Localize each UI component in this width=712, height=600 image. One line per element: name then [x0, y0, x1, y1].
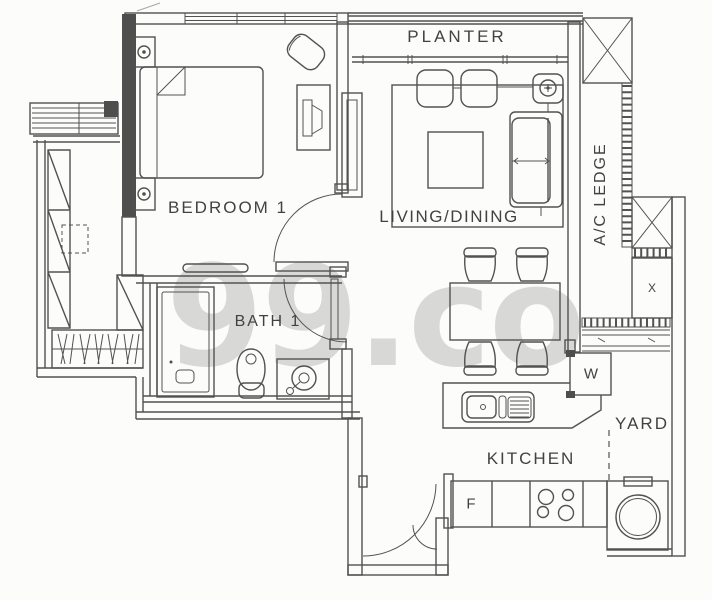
desk: [297, 85, 330, 150]
basin-drain: [299, 373, 309, 383]
bath-left-wall: [150, 283, 157, 396]
closet-dashed-unit: [62, 225, 88, 253]
planter-label: PLANTER: [407, 27, 506, 47]
washer-label: W: [584, 366, 598, 383]
floor-plan-drawing: [0, 0, 712, 600]
desk-chair-seat: [284, 31, 328, 74]
planter-track: [352, 57, 568, 62]
entrance-door-jamb: [359, 476, 367, 487]
bath-shelf: [183, 264, 248, 272]
bedroom-furniture: [133, 31, 330, 210]
entrance-right-wall: [436, 518, 448, 575]
bed-fold-diagonal: [157, 67, 185, 95]
laundry-sink: [616, 495, 660, 539]
lamp-bottom-dot: [142, 192, 146, 196]
hatch-strip-low: [582, 318, 670, 327]
living-furniture: [342, 70, 563, 227]
bath-right-wall: [342, 349, 352, 418]
ac-unit-box-mid-cross: [632, 197, 672, 248]
bath-door-leaf: [331, 279, 338, 339]
closet-left-wall: [37, 140, 45, 377]
floor-lamp-dot: [546, 86, 549, 89]
living-dining-label: LIVING/DINING: [379, 207, 518, 227]
bedroom1-label: BEDROOM 1: [168, 198, 288, 218]
yard-label: YARD: [615, 414, 669, 434]
dining-chair: [516, 248, 548, 281]
entrance-door-arc-small: [413, 525, 437, 549]
shower-drain-dot: [170, 361, 173, 364]
bedroom-left-wall: [122, 14, 136, 217]
floor-plan: 99.co: [0, 0, 712, 600]
dining-set: [450, 248, 560, 375]
ac-unit-label: X: [648, 281, 656, 295]
bed: [140, 67, 263, 178]
fridge-label: F: [466, 496, 475, 513]
dining-table: [450, 283, 560, 340]
washer-corner-top: [566, 350, 575, 357]
burner: [563, 490, 574, 501]
lamp-top-dot: [142, 50, 146, 54]
outer-right-wall: [672, 197, 685, 556]
vanity-counter: [277, 359, 329, 399]
shower-drain: [176, 370, 194, 383]
sink-divider: [499, 396, 506, 418]
dining-chair: [464, 342, 496, 375]
living-right-wall: [568, 22, 580, 352]
ac-ledge-label: A/C LEDGE: [592, 142, 610, 245]
yard-fixtures: [565, 340, 668, 550]
desk-monitor-side: [312, 105, 322, 134]
tv-console: [342, 93, 362, 197]
entrance-door-arc: [363, 484, 436, 556]
bedroom-window: [185, 13, 337, 24]
wall-column: [104, 101, 118, 117]
bathroom-fixtures: [157, 264, 347, 399]
coffee-table: [428, 132, 483, 188]
bay-window-louvers: [32, 103, 116, 134]
basin-tap: [287, 388, 294, 395]
ac-unit-box-top-cross: [583, 18, 632, 83]
burner: [539, 490, 554, 505]
burner: [559, 506, 574, 521]
dining-chair: [516, 342, 548, 375]
sink-drainboard: [508, 397, 531, 418]
desk-monitor: [303, 100, 312, 136]
washer-corner-bottom: [566, 391, 575, 398]
bay-window: [30, 101, 120, 142]
pouf-connectors: [453, 87, 533, 88]
pouf-left: [417, 70, 453, 107]
shower-enclosure: [157, 287, 214, 397]
planter-top-wall: [348, 13, 583, 24]
walls: [37, 3, 685, 575]
sink-drain: [481, 405, 486, 410]
bay-window-sill: [33, 136, 120, 142]
sofa: [510, 112, 562, 207]
burner: [538, 507, 549, 518]
pencil-artifact: [137, 3, 160, 11]
doors: [274, 194, 437, 556]
laundry-sink-inner: [620, 499, 657, 536]
desk-chair: [284, 31, 328, 74]
bath1-label: BATH 1: [235, 313, 302, 331]
toilet-flush: [246, 354, 256, 364]
sink-bowl: [467, 396, 496, 418]
shower-tray: [162, 292, 209, 392]
yard-vent-shelf: [582, 330, 670, 351]
dining-chair: [464, 248, 496, 281]
drainboard-lines: [510, 401, 529, 417]
closet-bottom-wall: [37, 368, 143, 377]
entrance-bottom-wall: [348, 565, 448, 575]
pouf-right: [461, 70, 497, 107]
kitchen-label: KITCHEN: [487, 449, 576, 469]
entrance-left-wall: [348, 418, 362, 575]
bath-top-wall: [136, 276, 342, 283]
bedroom-left-wall-lower: [122, 217, 136, 276]
